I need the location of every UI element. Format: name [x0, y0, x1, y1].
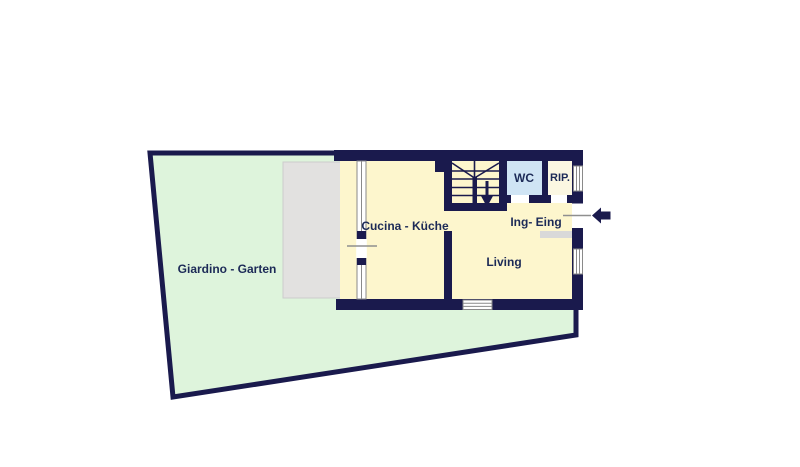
wall-wc-rip-divider: [542, 161, 548, 195]
wc-label: WC: [514, 171, 534, 185]
right-wall-window-top: [574, 166, 583, 191]
living-label: Living: [486, 255, 521, 269]
entrance-arrow-icon: [592, 208, 611, 224]
wall-stair-bottom: [444, 203, 507, 211]
storage-label: RIP.: [550, 172, 570, 184]
storage-door-opening: [551, 195, 567, 203]
floor-plan: Giardino - Garten Cucina - Küche Living …: [0, 0, 800, 467]
right-wall-window-bottom: [574, 249, 583, 274]
wc-door-opening: [511, 195, 529, 203]
garden-label: Giardino - Garten: [178, 262, 277, 276]
entrance-step: [540, 231, 572, 238]
entrance-label: Ing- Eing: [510, 215, 561, 229]
living-window: [463, 300, 492, 310]
wall-kitchen-living-divider: [444, 231, 452, 303]
floor-plan-page: Giardino - Garten Cucina - Küche Living …: [0, 0, 800, 467]
wall-top: [334, 150, 583, 161]
wall-bottom: [336, 299, 583, 310]
kitchen-label: Cucina - Küche: [361, 219, 449, 233]
